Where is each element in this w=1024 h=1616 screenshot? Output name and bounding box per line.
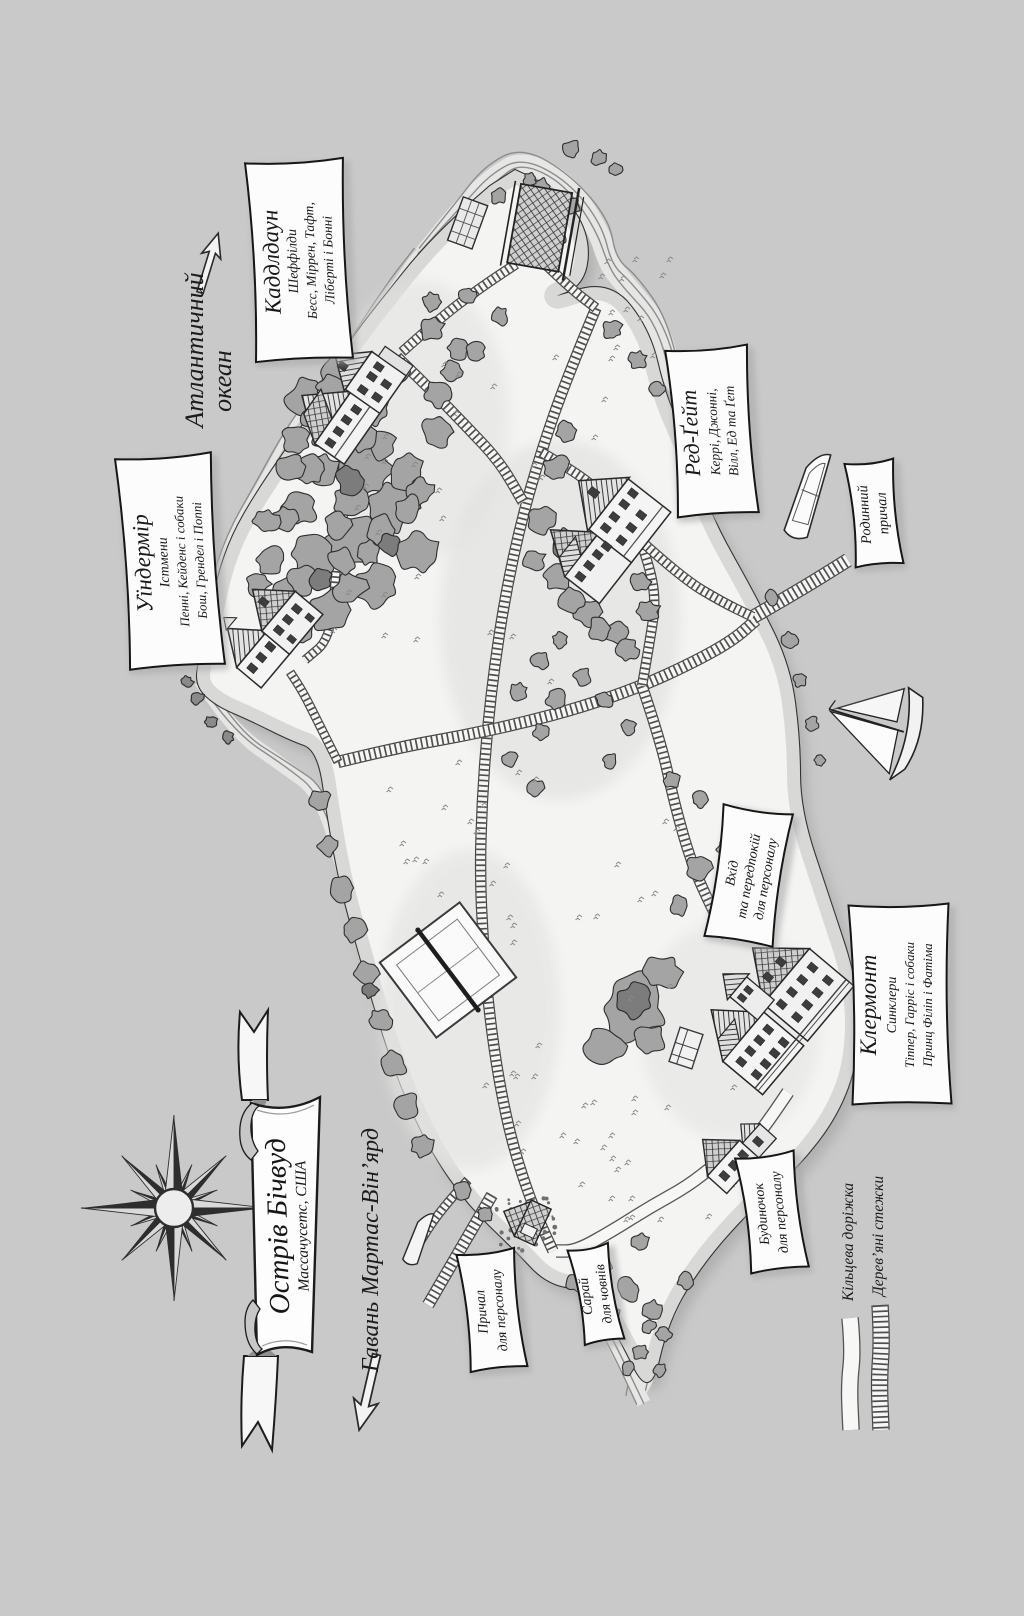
svg-text:океан: океан bbox=[208, 350, 237, 412]
svg-text:Дерев’яні стежки: Дерев’яні стежки bbox=[870, 1176, 887, 1299]
svg-text:Ліберті і Бонні: Ліберті і Бонні bbox=[319, 215, 337, 305]
svg-text:Синклери: Синклери bbox=[885, 977, 900, 1034]
svg-text:Атлантичний: Атлантичний bbox=[180, 272, 209, 429]
svg-text:Істмени: Істмени bbox=[156, 537, 174, 589]
svg-text:Массачусетс, США: Массачусетс, США bbox=[292, 1160, 312, 1293]
svg-text:Острів Бічвуд: Острів Бічвуд bbox=[260, 1138, 297, 1315]
svg-text:Гавань Мартас-Він’ярд: Гавань Мартас-Він’ярд bbox=[358, 1128, 384, 1373]
svg-text:Ред-Ґейт: Ред-Ґейт bbox=[676, 389, 706, 478]
svg-text:Принц Філіп і Фатіма: Принц Філіп і Фатіма bbox=[920, 943, 935, 1068]
svg-text:Уїндермір: Уїндермір bbox=[127, 514, 157, 614]
svg-text:Шеффілди: Шеффілди bbox=[285, 229, 302, 295]
svg-text:Каддлдаун: Каддлдаун bbox=[257, 209, 286, 315]
svg-text:причал: причал bbox=[874, 492, 893, 535]
svg-text:Клермонт: Клермонт bbox=[856, 955, 881, 1057]
svg-text:Кільцева доріжка: Кільцева доріжка bbox=[840, 1183, 857, 1303]
svg-text:Тіппер, Гарріс і собаки: Тіппер, Гарріс і собаки bbox=[902, 941, 917, 1068]
